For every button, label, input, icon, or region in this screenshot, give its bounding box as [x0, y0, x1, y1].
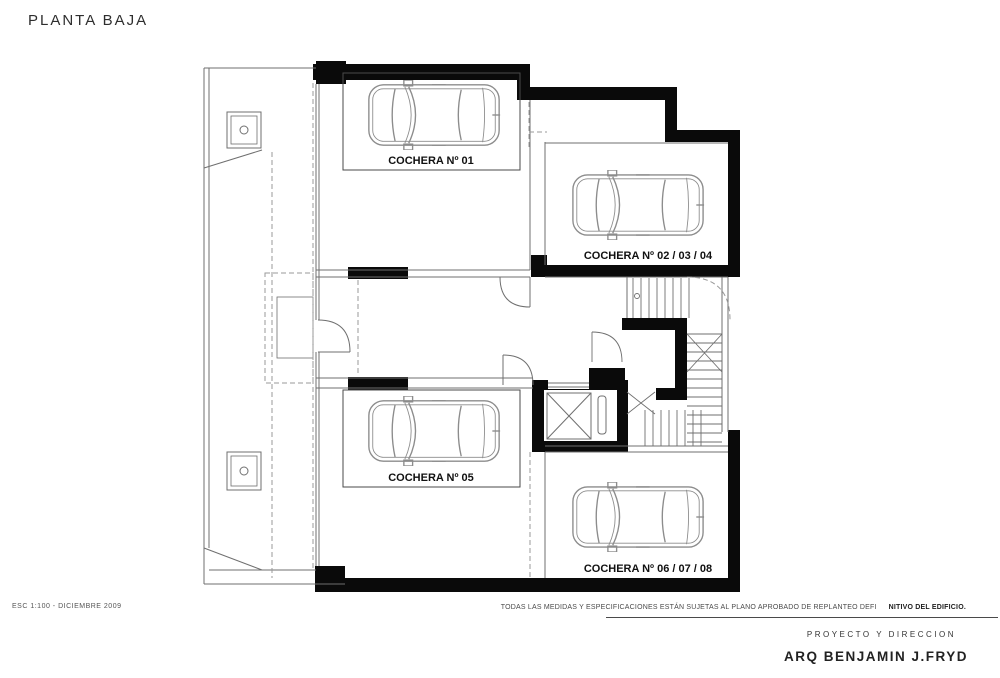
architect-name: ARQ BENJAMIN J.FRYD [784, 649, 968, 664]
hall-door-upper [500, 277, 530, 307]
stair-door [592, 332, 622, 362]
garage-labels: COCHERA Nº 01 COCHERA Nº 02 / 03 / 04 CO… [388, 155, 713, 575]
planter-box [227, 452, 261, 490]
doors [318, 277, 533, 385]
car-cochera-05 [369, 396, 500, 466]
disclaimer-note: TODAS LAS MEDIDAS Y ESPECIFICACIONES EST… [501, 604, 966, 611]
blueprint-page: PLANTA BAJA [0, 0, 1000, 678]
car-cochera-02 [573, 170, 704, 240]
hall-door-lower [503, 355, 533, 385]
disclaimer-regular: TODAS LAS MEDIDAS Y ESPECIFICACIONES EST… [501, 604, 877, 611]
car-cochera-06 [573, 482, 704, 552]
scale-note: ESC 1:100 - DICIEMBRE 2009 [12, 603, 122, 610]
label-cochera-02-03-04: COCHERA Nº 02 / 03 / 04 [584, 250, 713, 262]
entrance-door [318, 320, 350, 352]
dashed-projection-lines [265, 83, 730, 578]
titleblock-divider [606, 617, 998, 618]
floor-plan-drawing: COCHERA Nº 01 COCHERA Nº 02 / 03 / 04 CO… [0, 0, 1000, 678]
stair-walk-line [687, 277, 730, 320]
sidewalk-planters [227, 112, 261, 490]
project-direction-label: PROYECTO Y DIRECCION [807, 630, 956, 639]
label-cochera-01: COCHERA Nº 01 [388, 155, 474, 167]
planter-box [227, 112, 261, 148]
stair-break-line [687, 334, 722, 372]
elevator-shaft [532, 368, 628, 452]
stair-break-line [627, 392, 655, 414]
disclaimer-bold: NITIVO DEL EDIFICIO. [889, 604, 966, 611]
label-cochera-06-07-08: COCHERA Nº 06 / 07 / 08 [584, 563, 712, 575]
car-cochera-01 [369, 80, 500, 150]
label-cochera-05: COCHERA Nº 05 [388, 472, 474, 484]
black-structural-walls [313, 61, 740, 592]
